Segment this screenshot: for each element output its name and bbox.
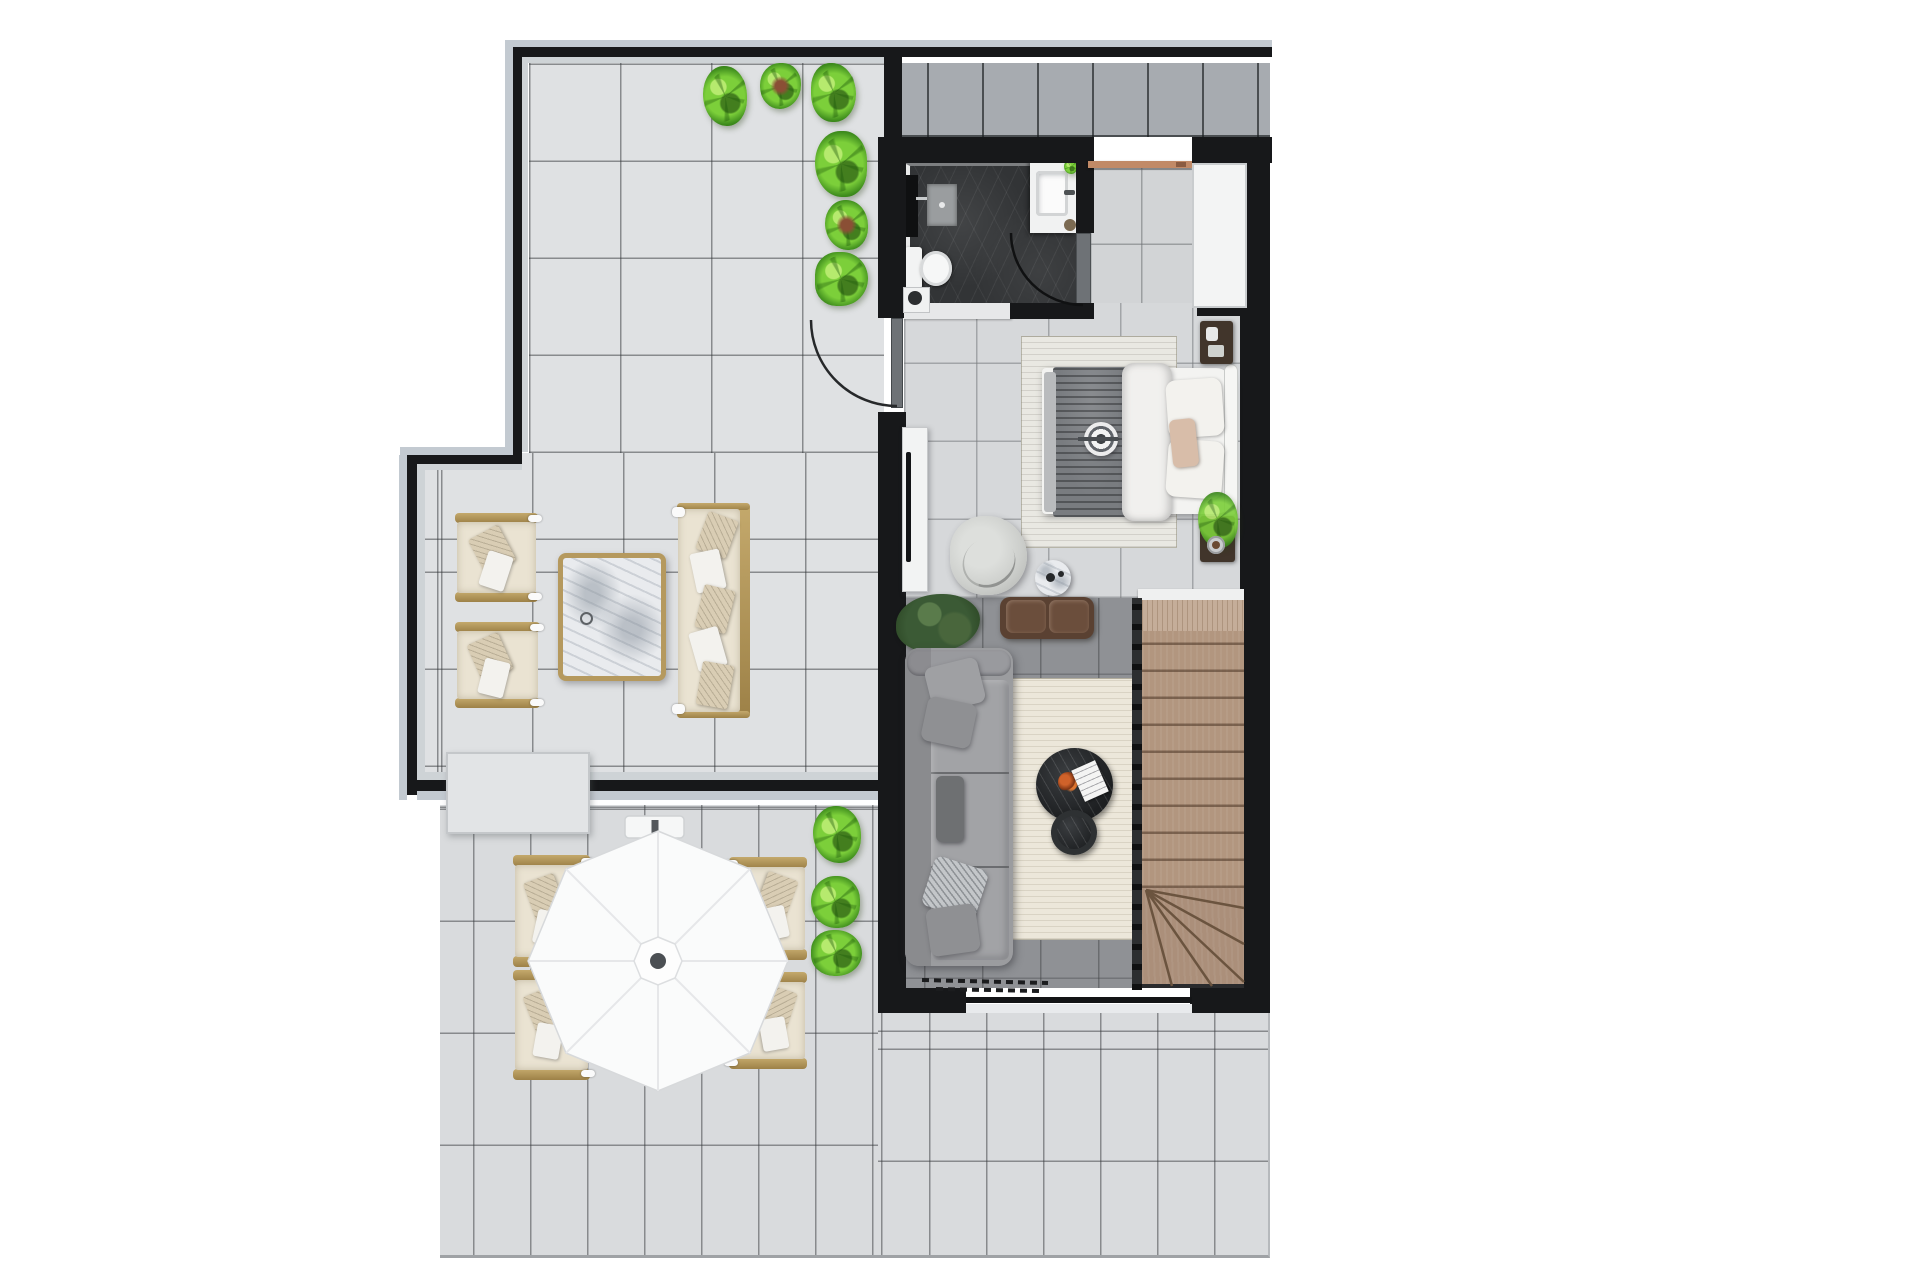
bathroom-door-arc <box>1011 233 1083 305</box>
stair-winder-lines <box>1146 890 1244 986</box>
terrace-door-arc <box>811 320 897 406</box>
floor-plan-canvas <box>0 0 1920 1280</box>
threshold-decor-marks <box>922 980 1048 991</box>
umbrella <box>528 816 788 1091</box>
vector-overlay <box>0 0 1920 1280</box>
umbrella-hub-center <box>650 953 666 969</box>
